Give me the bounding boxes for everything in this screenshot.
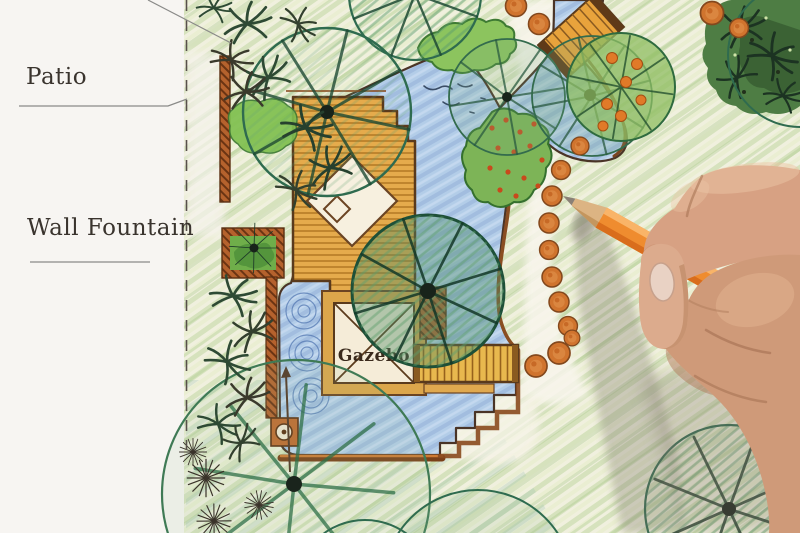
wall-upper xyxy=(220,56,230,202)
wall-fountain-label: Wall Fountain xyxy=(27,215,194,241)
planter-box xyxy=(222,223,284,278)
patio-label: Patio xyxy=(26,64,87,90)
landscape-plan-photo: Gazebo xyxy=(0,0,800,533)
thumb xyxy=(639,244,689,349)
